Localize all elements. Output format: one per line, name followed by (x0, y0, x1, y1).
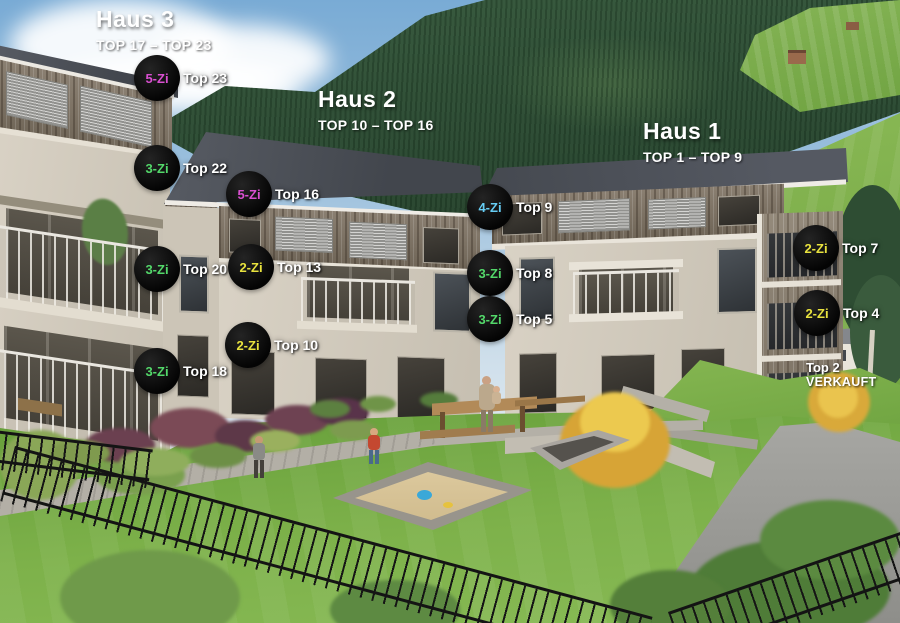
unit-badge-top-4[interactable]: 2-Zi Top 4 (794, 290, 879, 336)
unit-badge-top-7[interactable]: 2-Zi Top 7 (793, 225, 878, 271)
person-child (366, 428, 382, 466)
haus3-title: Haus 3 (96, 6, 212, 33)
unit-rooms-marker: 2-Zi (228, 244, 274, 290)
unit-label: Top 22 (183, 160, 227, 176)
window (433, 271, 471, 332)
mountain-hut (788, 50, 806, 64)
window (718, 195, 760, 227)
balcony-railing (573, 269, 679, 316)
unit-rooms-marker: 3-Zi (467, 296, 513, 342)
unit-badge-top-13[interactable]: 2-Zi Top 13 (228, 244, 321, 290)
person-adult-with-child (478, 376, 504, 434)
unit-rooms-marker: 3-Zi (134, 246, 180, 292)
unit-rooms-marker: 3-Zi (467, 250, 513, 296)
haus1-range: TOP 1 – TOP 9 (643, 149, 742, 165)
unit-badge-top-5[interactable]: 3-Zi Top 5 (467, 296, 552, 342)
haus2-range: TOP 10 – TOP 16 (318, 117, 434, 133)
haus3-heading: Haus 3 TOP 17 – TOP 23 (96, 6, 212, 53)
property-visualization: Haus 3 TOP 17 – TOP 23 Haus 2 TOP 10 – T… (0, 0, 900, 623)
sold-unit-label: Top 2 VERKAUFT (806, 360, 876, 390)
window (717, 247, 757, 314)
unit-badge-top-10[interactable]: 2-Zi Top 10 (225, 322, 318, 368)
sand-toy (417, 490, 432, 500)
haus1-heading: Haus 1 TOP 1 – TOP 9 (643, 118, 742, 165)
haus2-heading: Haus 2 TOP 10 – TOP 16 (318, 86, 434, 133)
unit-label: Top 18 (183, 363, 227, 379)
roller-shutter (648, 197, 706, 229)
haus2-title: Haus 2 (318, 86, 434, 113)
bush (360, 396, 396, 412)
unit-label: Top 16 (275, 186, 319, 202)
unit-label: Top 7 (842, 240, 878, 256)
roller-shutter (6, 71, 68, 129)
sold-unit-status: VERKAUFT (806, 375, 876, 390)
unit-rooms-marker: 2-Zi (794, 290, 840, 336)
unit-label: Top 8 (516, 265, 552, 281)
unit-badge-top-22[interactable]: 3-Zi Top 22 (134, 145, 227, 191)
unit-badge-top-20[interactable]: 3-Zi Top 20 (134, 246, 227, 292)
unit-badge-top-18[interactable]: 3-Zi Top 18 (134, 348, 227, 394)
unit-rooms-marker: 3-Zi (134, 348, 180, 394)
unit-rooms-marker: 5-Zi (226, 171, 272, 217)
sand-toy (443, 502, 453, 508)
unit-rooms-marker: 4-Zi (467, 184, 513, 230)
sold-unit-number: Top 2 (806, 360, 876, 375)
bush (310, 400, 350, 418)
unit-rooms-marker: 5-Zi (134, 55, 180, 101)
unit-label: Top 10 (274, 337, 318, 353)
unit-rooms-marker: 2-Zi (793, 225, 839, 271)
sandbox (325, 452, 540, 537)
unit-badge-top-8[interactable]: 3-Zi Top 8 (467, 250, 552, 296)
window (423, 227, 459, 265)
unit-badge-top-16[interactable]: 5-Zi Top 16 (226, 171, 319, 217)
roller-shutter (349, 222, 407, 261)
bush (190, 444, 246, 468)
unit-label: Top 4 (843, 305, 879, 321)
unit-label: Top 13 (277, 259, 321, 275)
roller-shutter (558, 198, 630, 233)
unit-rooms-marker: 2-Zi (225, 322, 271, 368)
unit-label: Top 23 (183, 70, 227, 86)
unit-label: Top 9 (516, 199, 552, 215)
haus3-range: TOP 17 – TOP 23 (96, 37, 212, 53)
person-child (250, 436, 268, 482)
haus1-title: Haus 1 (643, 118, 742, 145)
unit-badge-top-23[interactable]: 5-Zi Top 23 (134, 55, 227, 101)
unit-label: Top 20 (183, 261, 227, 277)
balcony-slab (761, 279, 841, 288)
mountain-hut (846, 22, 859, 30)
unit-label: Top 5 (516, 311, 552, 327)
unit-rooms-marker: 3-Zi (134, 145, 180, 191)
table-leg (520, 406, 525, 432)
unit-badge-top-9[interactable]: 4-Zi Top 9 (467, 184, 552, 230)
